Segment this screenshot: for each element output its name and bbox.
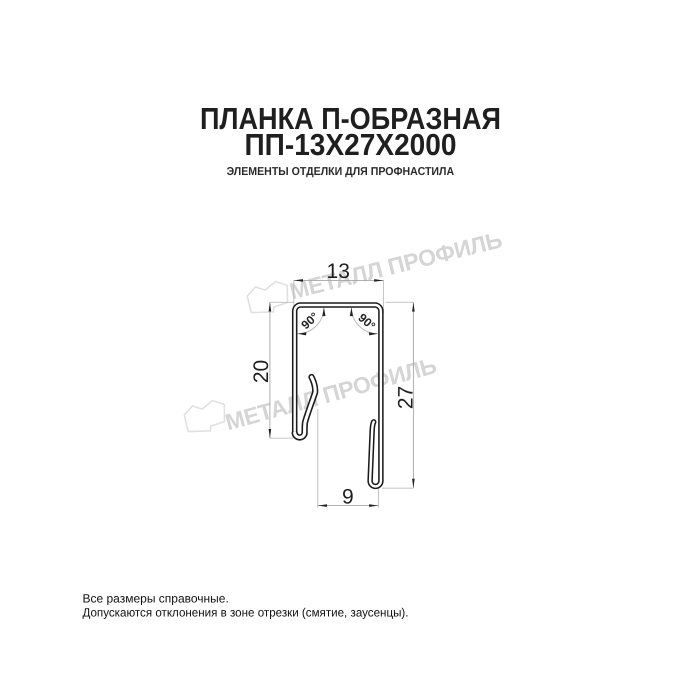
svg-text:9: 9 bbox=[342, 485, 354, 508]
svg-text:20: 20 bbox=[250, 360, 273, 383]
svg-text:Допускаются отклонения в зоне: Допускаются отклонения в зоне отрезки (с… bbox=[83, 606, 409, 620]
svg-text:13: 13 bbox=[327, 260, 350, 283]
svg-text:ПП-13Х27Х2000: ПП-13Х27Х2000 bbox=[245, 128, 457, 162]
svg-text:ЭЛЕМЕНТЫ ОТДЕЛКИ ДЛЯ ПРОФНАСТИ: ЭЛЕМЕНТЫ ОТДЕЛКИ ДЛЯ ПРОФНАСТИЛА bbox=[227, 166, 455, 178]
svg-text:27: 27 bbox=[395, 386, 418, 409]
svg-text:Все размеры справочные.: Все размеры справочные. bbox=[83, 592, 229, 606]
